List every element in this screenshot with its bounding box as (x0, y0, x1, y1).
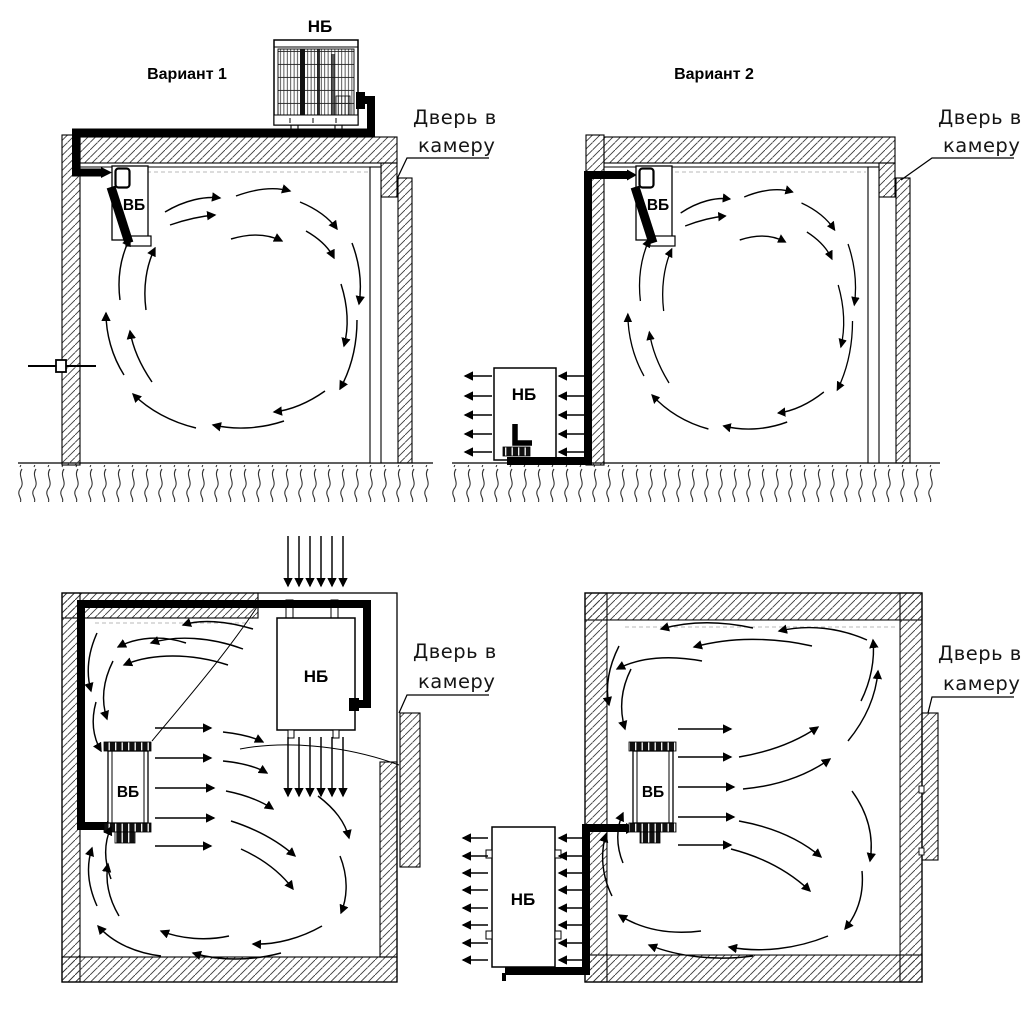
unit-tab (486, 850, 492, 858)
door-leader-line (399, 695, 489, 713)
panel-variant-1: Вариант 1 НБ ВБ (18, 17, 497, 502)
corner-block (879, 163, 895, 197)
door (400, 713, 420, 867)
door-hinge (919, 786, 924, 793)
unit-foot (640, 832, 660, 843)
panel-title: Вариант 1 (147, 66, 227, 83)
airflow-arrow (231, 235, 282, 241)
grille-shadow (317, 49, 320, 115)
outdoor-unit-label: НБ (304, 667, 329, 686)
corner-block (381, 163, 397, 197)
unit-tab (486, 931, 492, 939)
outdoor-unit-label: НБ (308, 17, 333, 36)
ground-hatch (18, 465, 433, 502)
fan-inlet (116, 169, 130, 188)
roof-wall (604, 137, 895, 163)
roof-wall (80, 137, 397, 163)
left-wall (62, 135, 80, 465)
door-hinge (919, 848, 924, 855)
door-label-line2: камеру (418, 670, 495, 693)
panel-outdoor-condenser-low: НБ ВБ (463, 593, 1022, 982)
outdoor-unit-label: НБ (512, 385, 537, 404)
door-label-line1: Дверь в (938, 106, 1022, 129)
floor-wall (585, 955, 922, 982)
pipe-arrowhead (101, 167, 112, 178)
indoor-unit: ВБ (111, 166, 151, 246)
door (896, 178, 910, 463)
airflow-arrow (213, 421, 284, 428)
airflow-arrow (106, 313, 124, 375)
fan-inlet (640, 169, 654, 188)
airflow-arrow (306, 231, 334, 258)
right-wall (380, 762, 397, 957)
unit-top-cap (629, 742, 676, 751)
airflow-arrow (274, 391, 325, 412)
outdoor-unit: НБ (465, 368, 584, 460)
door-label-line2: камеру (943, 672, 1020, 695)
airflow-arrow (236, 189, 290, 196)
door-label-line2: камеру (418, 134, 495, 157)
unit-foot (115, 832, 135, 843)
airflow-arrow (300, 202, 337, 229)
outdoor-unit: НБ (274, 17, 365, 137)
unit-tab (555, 931, 561, 939)
airflow-arrow (340, 320, 357, 389)
unit-base (274, 115, 358, 125)
door-label-line1: Дверь в (938, 642, 1022, 665)
indoor-unit-label: ВБ (642, 784, 664, 801)
drawing-sheet: Вариант 1 НБ ВБ (0, 0, 1024, 1024)
door-leader-line (397, 158, 489, 179)
unit-foot (288, 730, 294, 738)
intake-airflow (288, 536, 343, 586)
indoor-unit-label: ВБ (117, 784, 139, 801)
door-callout: Дверь в камеру (901, 106, 1022, 180)
right-wall (868, 167, 879, 463)
grille-shadow (331, 54, 335, 115)
airflow-arrow (341, 284, 347, 346)
outdoor-unit: НБ (277, 618, 359, 738)
roof-wall (585, 593, 922, 620)
door-callout: Дверь в камеру (399, 640, 497, 713)
indoor-unit: ВБ (635, 166, 675, 246)
door-label-line1: Дверь в (413, 106, 497, 129)
airflow-arrow (133, 394, 196, 428)
unit-body (494, 368, 556, 460)
outdoor-unit: НБ (463, 827, 582, 967)
panel-indoor-condenser: НБ ВБ (62, 536, 497, 982)
indoor-unit: ВБ (629, 742, 676, 843)
unit-bottom-cap (629, 823, 676, 832)
airflow-arrow (352, 243, 360, 304)
airflow-arrow (145, 248, 155, 310)
door-label-line1: Дверь в (413, 640, 497, 663)
door-label-line2: камеру (943, 134, 1020, 157)
compressor-base (503, 447, 530, 456)
right-wall (370, 167, 381, 463)
door-callout: Дверь в камеру (397, 106, 497, 179)
unit-foot (333, 730, 339, 738)
airflow-arrow (170, 215, 215, 225)
pipe-stub (502, 973, 506, 981)
unit-tab (555, 850, 561, 858)
pipe-fitting (349, 698, 359, 711)
unit-top-cap (104, 742, 151, 751)
outdoor-unit-label: НБ (511, 890, 536, 909)
drain-fitting (56, 360, 66, 372)
door (398, 178, 412, 463)
airflow-arrow (165, 198, 220, 212)
floor-wall (62, 957, 397, 982)
door-leader-line (928, 697, 1014, 713)
diagram-canvas: Вариант 1 НБ ВБ (0, 0, 1024, 1024)
airflow-arrow (130, 331, 152, 382)
panel-title: Вариант 2 (674, 66, 754, 83)
indoor-unit-label: ВБ (123, 197, 145, 214)
door-callout: Дверь в камеру (928, 642, 1022, 713)
grille-shadow (300, 49, 305, 115)
panel-variant-2: Вариант 2 НБ ВБ (452, 66, 1022, 502)
airflow-arrow (119, 238, 130, 300)
door-leader-line (901, 158, 1014, 180)
ground-hatch (452, 465, 940, 502)
grille-detail (336, 96, 350, 115)
indoor-unit-label: ВБ (647, 197, 669, 214)
